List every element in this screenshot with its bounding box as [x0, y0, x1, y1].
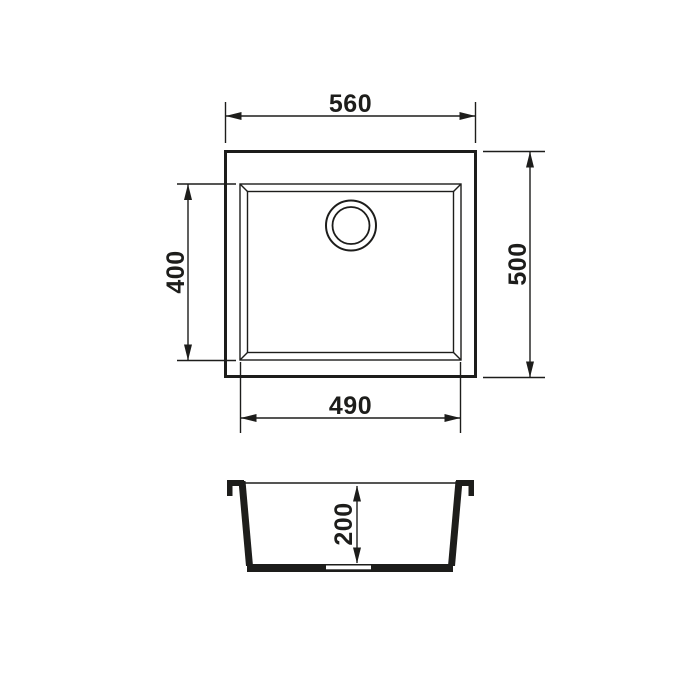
dimension-bowl-width: 490 — [241, 362, 461, 433]
arrowhead-up — [184, 184, 192, 200]
dimension-label-overall-width: 560 — [329, 90, 372, 118]
arrowhead-right — [445, 414, 461, 422]
bowl-corner-chamfer-top-left — [241, 185, 248, 192]
arrowhead-down — [353, 548, 361, 564]
dimension-overall-width: 560 — [226, 90, 476, 143]
drain-hole-inner — [333, 207, 370, 244]
dimension-overall-depth: 500 — [483, 152, 545, 378]
dimension-label-bowl-width: 490 — [329, 392, 372, 420]
bowl-corner-chamfer-top-right — [454, 185, 461, 192]
arrowhead-right — [460, 112, 476, 120]
bowl-rim-inner — [248, 192, 454, 353]
arrowhead-up — [526, 152, 534, 168]
arrowhead-left — [226, 112, 242, 120]
dimension-label-bowl-depth: 400 — [162, 250, 190, 293]
dimension-label-overall-depth: 500 — [504, 242, 532, 285]
arrowhead-left — [241, 414, 257, 422]
sink-dimension-drawing: 560 500 400 490 — [0, 0, 700, 700]
bowl-rim-outer — [240, 184, 461, 360]
drawing-canvas: 560 500 400 490 — [0, 0, 700, 700]
sink-outer-edge — [226, 152, 476, 377]
arrowhead-down — [526, 362, 534, 378]
arrowhead-up — [353, 486, 361, 502]
dimension-bowl-height: 200 — [330, 486, 361, 564]
bowl-wall-left — [239, 481, 254, 566]
bowl-corner-chamfer-bottom-right — [454, 353, 461, 360]
drain-hole-outer — [326, 201, 376, 251]
arrowhead-down — [184, 345, 192, 361]
bowl-corner-chamfer-bottom-left — [241, 353, 248, 360]
drain-recess — [326, 565, 372, 570]
top-view — [226, 152, 476, 377]
bowl-wall-right — [448, 481, 463, 566]
dimension-label-bowl-height: 200 — [330, 502, 358, 545]
